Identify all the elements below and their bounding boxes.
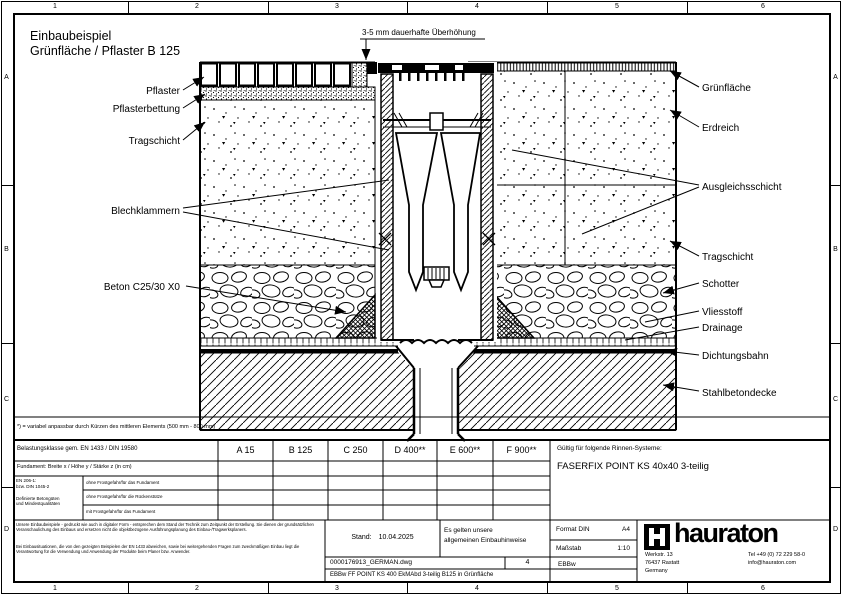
load-class-b125: B 125 — [273, 445, 328, 456]
label-schotter: Schotter — [702, 279, 740, 290]
brand-address: Werkstr. 13 76437 Rastatt Germany — [645, 552, 679, 576]
label-erdreich: Erdreich — [702, 123, 739, 134]
grid-tick — [829, 343, 841, 344]
greenarea-section — [468, 62, 676, 338]
grid-row-ref: A — [1, 73, 12, 83]
brand-contact: Tel +49 (0) 72 229 58-0 info@hauraton.co… — [748, 552, 805, 568]
grid-tick — [829, 185, 841, 186]
file-name: 0000176913_GERMAN.dwg — [330, 559, 412, 567]
scale-label: Maßstab — [556, 545, 581, 553]
grid-tick — [1, 487, 13, 488]
hauraton-logo-icon — [644, 524, 670, 550]
grid-tick — [687, 582, 688, 594]
drawing-sheet: 1 2 3 4 5 6 1 2 3 4 5 6 A B C D A B C D — [0, 0, 842, 595]
grid-row-ref: C — [830, 395, 841, 405]
grid-tick — [547, 1, 548, 13]
label-gruenflaeche: Grünfläche — [702, 83, 751, 94]
stand-date: 10.04.2025 — [379, 534, 414, 543]
drawing-description: EBBw FF POINT KS 400 EkMAbd 3-teilig B12… — [330, 572, 630, 580]
disclaimer-2: Bei Einbausituationen, die von den gezei… — [16, 544, 322, 555]
grid-col-ref: 4 — [462, 583, 492, 594]
install-hint: Es gelten unsere allgemeinen Einbauhinwe… — [444, 526, 548, 546]
grid-tick — [128, 582, 129, 594]
load-class-c250: C 250 — [328, 445, 383, 456]
code: EBBw — [558, 561, 576, 569]
format-value: A4 — [600, 526, 630, 534]
load-class-e600: E 600** — [437, 445, 493, 456]
label-beton: Beton C25/30 X0 — [104, 282, 181, 293]
channel-wall-left — [381, 74, 393, 340]
disclaimer-1: Unsere Einbaubeispiele - gedruckt wie au… — [16, 522, 322, 533]
grid-col-ref: 5 — [602, 1, 632, 12]
concrete-norm-cell: EN 206-1: bzw. DIN 1045-2 Definierte Bet… — [16, 478, 81, 507]
drawing-title-line2: Grünfläche / Pflaster B 125 — [30, 44, 180, 58]
grid-tick — [547, 582, 548, 594]
hauraton-wordmark: hauraton — [674, 520, 778, 547]
grid-row-ref: D — [830, 525, 841, 535]
label-dichtungsbahn: Dichtungsbahn — [702, 351, 769, 362]
grid-tick — [407, 582, 408, 594]
grid-row-ref: B — [830, 245, 841, 255]
concrete-row-2: ohne Frostgefahr/für die Rückenstütze — [86, 494, 216, 500]
grid-tick — [687, 1, 688, 13]
grid-tick — [268, 1, 269, 13]
load-class-f900: F 900** — [493, 445, 550, 456]
format-label: Format DIN — [556, 526, 590, 534]
grid-tick — [1, 343, 13, 344]
label-tragschicht-right: Tragschicht — [702, 252, 754, 263]
grid-col-ref: 3 — [322, 583, 352, 594]
system-name: FASERFIX POINT KS 40x40 3-teilig — [557, 461, 825, 473]
paving-blocks — [201, 64, 350, 86]
footnote: *) = variabel anpassbar durch Kürzen des… — [17, 424, 215, 431]
grid-col-ref: 1 — [40, 1, 70, 12]
grid-tick — [1, 185, 13, 186]
grid-col-ref: 2 — [182, 1, 212, 12]
grid-col-ref: 6 — [748, 583, 778, 594]
label-stahlbetondecke: Stahlbetondecke — [702, 388, 777, 399]
concrete-row-3: mit Frostgefahr/für das Fundament — [86, 509, 216, 515]
stand-cell: Stand: 10.04.2025 — [325, 520, 440, 557]
grid-col-ref: 6 — [748, 1, 778, 12]
sheet-number: 4 — [505, 559, 550, 568]
label-vliesstoff: Vliesstoff — [702, 307, 743, 318]
grid-col-ref: 1 — [40, 583, 70, 594]
load-class-d400: D 400** — [383, 445, 437, 456]
grid-row-ref: C — [1, 395, 12, 405]
grid-row-ref: D — [1, 525, 12, 535]
load-class-label: Belastungsklasse gem. EN 1433 / DIN 1958… — [17, 446, 215, 454]
foundation-label: Fundament: Breite x / Höhe y / Stärke z … — [17, 464, 215, 471]
scale-value: 1:10 — [600, 545, 630, 553]
grid-col-ref: 4 — [462, 1, 492, 12]
label-blechklammern: Blechklammern — [111, 206, 180, 217]
grid-col-ref: 3 — [322, 1, 352, 12]
grid-tick — [407, 1, 408, 13]
grid-row-ref: B — [1, 245, 12, 255]
grid-col-ref: 5 — [602, 583, 632, 594]
grid-tick — [128, 1, 129, 13]
grid-tick — [268, 582, 269, 594]
overheight-annotation: 3-5 mm dauerhafte Überhöhung — [362, 28, 476, 37]
label-drainage: Drainage — [702, 323, 743, 334]
pavement-section — [200, 62, 381, 338]
grid-row-ref: A — [830, 73, 841, 83]
label-pflasterbettung: Pflasterbettung — [113, 104, 180, 115]
grid-col-ref: 2 — [182, 583, 212, 594]
valid-for-label: Gültig für folgende Rinnen-Systeme: — [557, 445, 825, 453]
concrete-row-1: ohne Frostgefahr/für das Fundament — [86, 480, 216, 486]
load-class-a15: A 15 — [218, 445, 273, 456]
label-ausgleichsschicht: Ausgleichsschicht — [702, 182, 782, 193]
grid-tick — [829, 487, 841, 488]
stand-label: Stand: — [351, 534, 371, 543]
drawing-title-line1: Einbaubeispiel — [30, 29, 111, 43]
label-pflaster: Pflaster — [146, 86, 181, 97]
label-tragschicht-left: Tragschicht — [129, 136, 181, 147]
